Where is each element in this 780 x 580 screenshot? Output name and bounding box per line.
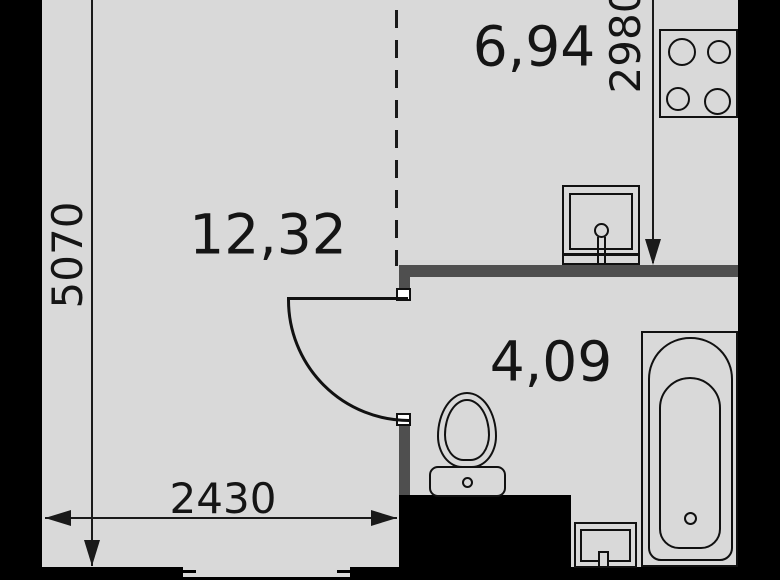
window-jamb-right [337, 570, 350, 573]
room-area-label-kitchen: 6,94 [473, 20, 595, 75]
stove-burner-icon [704, 88, 731, 115]
door-wall-stub-bottom [399, 426, 410, 495]
floor-plan: 5070 2980 2430 12,32 6,94 4,09 [0, 0, 780, 580]
arrow-left-icon [45, 510, 71, 526]
dimension-label-2430: 2430 [170, 478, 277, 520]
bathroom-sink-faucet [598, 551, 609, 568]
wall-bottom [0, 567, 780, 580]
toilet-bowl-inner [444, 399, 490, 461]
stove-burner-icon [666, 87, 690, 111]
kitchen-sink-faucet [597, 237, 606, 265]
stove-burner-icon [707, 40, 731, 64]
zone-divider-dashed-line [395, 10, 398, 266]
stove-burner-icon [668, 38, 696, 66]
wall-left [0, 0, 42, 580]
dimension-line-2980 [652, 0, 654, 263]
partition-wall-horizontal [399, 265, 738, 277]
dimension-label-2980: 2980 [605, 0, 647, 93]
kitchen-sink-faucet-head [594, 223, 609, 238]
arrow-down-icon [84, 540, 100, 566]
window-jamb-left [183, 570, 196, 573]
arrow-right-icon [371, 510, 397, 526]
arrow-down-icon [645, 239, 661, 265]
room-area-label-bathroom: 4,09 [490, 335, 612, 390]
wall-right [738, 0, 780, 580]
toilet-flush-button [462, 477, 473, 488]
bathtub-drain [684, 512, 697, 525]
room-area-label-living: 12,32 [189, 208, 346, 263]
door-swing-arc-icon [287, 300, 409, 422]
plumbing-block-wall [399, 495, 571, 580]
dimension-label-5070: 5070 [47, 202, 89, 309]
window [183, 567, 350, 577]
